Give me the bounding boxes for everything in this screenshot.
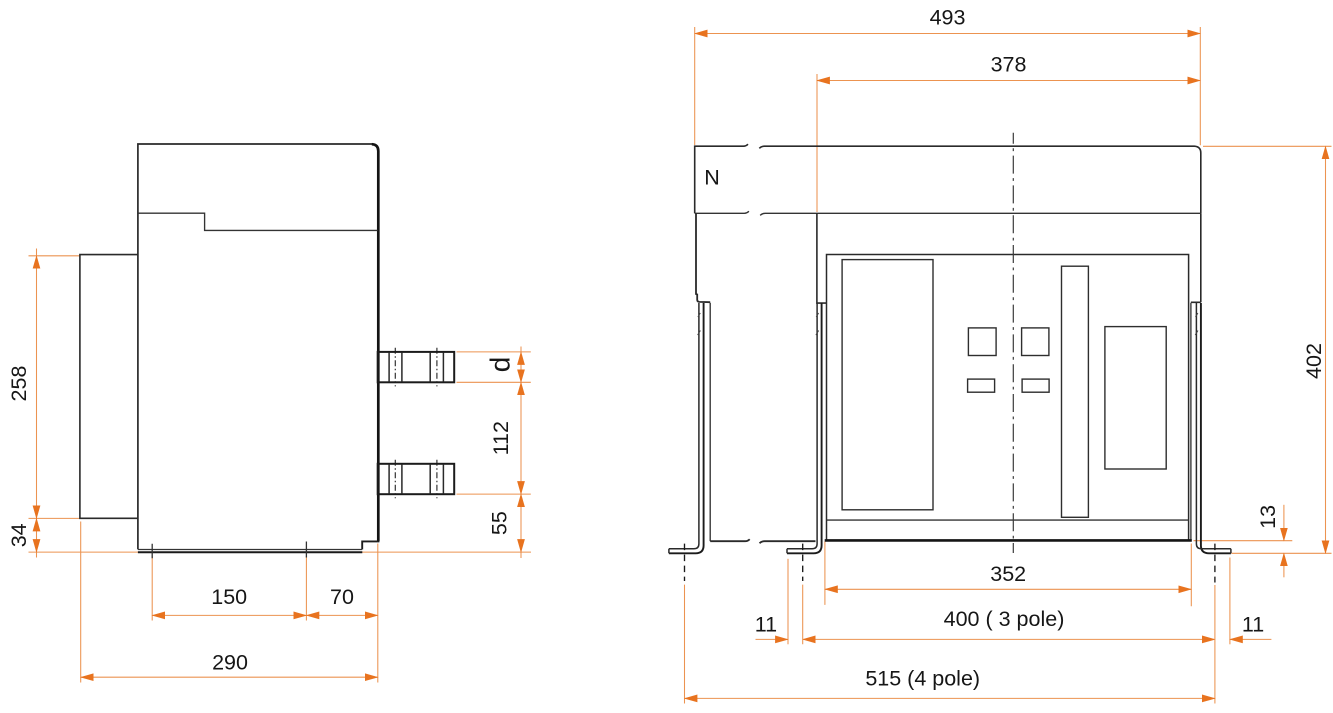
svg-text:112: 112 xyxy=(489,421,513,455)
svg-text:402: 402 xyxy=(1302,343,1326,379)
svg-text:d: d xyxy=(485,357,516,373)
svg-text:70: 70 xyxy=(330,585,354,609)
svg-text:258: 258 xyxy=(7,366,31,402)
svg-text:352: 352 xyxy=(990,562,1026,586)
svg-text:515 (4 pole): 515 (4 pole) xyxy=(865,666,980,690)
svg-text:400 ( 3 pole): 400 ( 3 pole) xyxy=(944,607,1065,631)
svg-text:13: 13 xyxy=(1256,505,1280,529)
svg-text:150: 150 xyxy=(211,585,247,609)
svg-text:493: 493 xyxy=(930,6,966,30)
svg-text:378: 378 xyxy=(991,53,1027,77)
svg-text:N: N xyxy=(704,166,720,190)
svg-text:55: 55 xyxy=(488,511,512,535)
svg-text:34: 34 xyxy=(7,523,31,547)
svg-text:290: 290 xyxy=(212,651,248,675)
svg-text:11: 11 xyxy=(1242,613,1264,637)
svg-text:11: 11 xyxy=(755,613,777,637)
